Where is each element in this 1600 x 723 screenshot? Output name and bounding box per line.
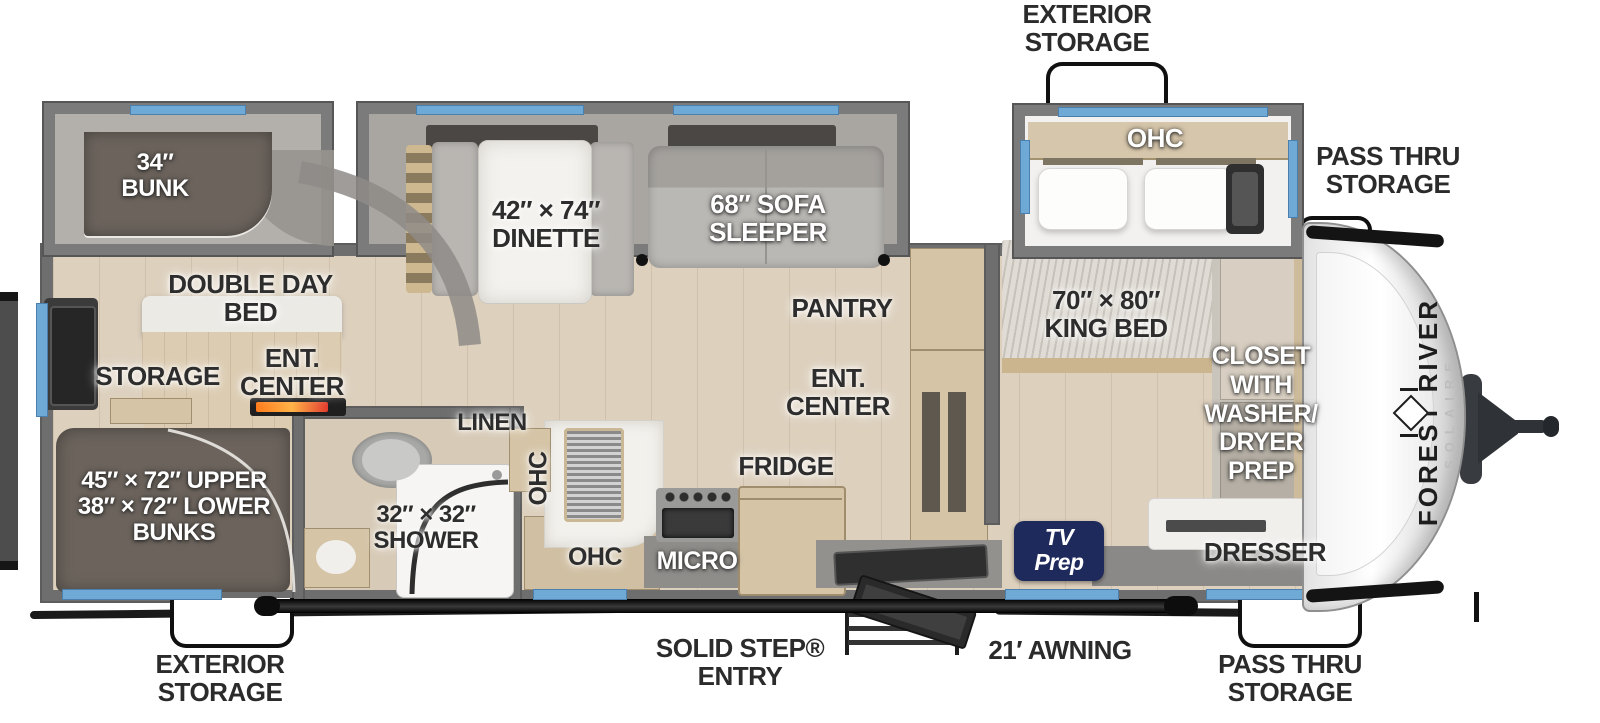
king-bed-base [1002, 358, 1212, 373]
awning-cap-left [254, 596, 280, 616]
pillow-right [1144, 168, 1234, 230]
label-ohc-kitchen-lower: OHC [556, 544, 634, 571]
bedroom-slide-side-window-glass [1232, 172, 1258, 226]
rear-wall-tv-screen [50, 306, 96, 406]
label-storage: STORAGE [85, 362, 230, 390]
sofa-window [673, 105, 839, 115]
label-linen: LINEN [444, 410, 540, 436]
label-solid-step-entry: SOLID STEP® ENTRY [645, 634, 835, 690]
dinette-window [416, 105, 584, 115]
bedroom-ent-center-slot-2 [948, 392, 966, 512]
brand-dash-top [1400, 388, 1418, 391]
awning-rod [262, 599, 1192, 613]
bottom-window-tvprep [1005, 589, 1119, 600]
label-bunks: 45″ × 72″ UPPER 38″ × 72″ LOWER BUNKS [60, 468, 288, 546]
bedroom-ent-center-slot-1 [922, 392, 940, 512]
label-pass-thru-top: PASS THRU STORAGE [1298, 142, 1478, 198]
brand-dash-bottom [1400, 434, 1418, 437]
bedroom-ohc-door-left [1043, 158, 1143, 165]
rear-wall-window [36, 303, 48, 417]
label-awning: 21′ AWNING [965, 636, 1155, 664]
label-dinette: 42″ × 74″ DINETTE [448, 196, 644, 252]
label-ent-center-bunkroom: ENT. CENTER [232, 344, 352, 400]
rear-bumper-cap-top [0, 292, 18, 301]
label-ohc-kitchen-wall: OHC [526, 434, 553, 524]
label-bunk-34: 34″ BUNK [95, 150, 215, 202]
kitchen-sink [564, 428, 624, 522]
bottom-window-kitchen [533, 589, 627, 600]
brand-solaire: SOLAIRE [1443, 292, 1461, 532]
sofa-cupholder-left [636, 254, 648, 266]
bedroom-divider-wall [984, 243, 1000, 525]
label-ohc-bedroom: OHC [1090, 124, 1220, 152]
label-ent-center-bedroom: ENT. CENTER [778, 364, 898, 420]
rear-bumper [0, 292, 18, 570]
label-closet-washer-dryer: CLOSET WITH WASHER/ DRYER PREP [1202, 342, 1320, 486]
front-jack-line [1474, 592, 1479, 622]
dresser-tv-bar [1166, 520, 1266, 532]
shower-drain [492, 470, 502, 480]
label-double-day-bed: DOUBLE DAY BED [148, 270, 353, 326]
label-fridge: FRIDGE [730, 452, 842, 480]
hitch-a-frame [1478, 392, 1518, 464]
label-pantry: PANTRY [782, 294, 902, 322]
fireplace-flame [256, 402, 328, 412]
storage-shelf [110, 398, 192, 424]
label-exterior-storage-top: EXTERIOR STORAGE [977, 0, 1197, 56]
label-pass-thru-bottom: PASS THRU STORAGE [1195, 650, 1385, 706]
label-exterior-storage-bottom: EXTERIOR STORAGE [120, 650, 320, 706]
hitch-coupler-tip [1543, 416, 1559, 437]
sofa-cupholder-right [878, 254, 890, 266]
toilet-lid [362, 439, 420, 481]
bottom-window-bunkroom [62, 589, 222, 600]
bedroom-slide-window-right [1288, 140, 1298, 218]
label-king-bed: 70″ × 80″ KING BED [1024, 286, 1188, 342]
bedroom-slide-window-left [1020, 140, 1030, 214]
label-dresser: DRESSER [1198, 538, 1332, 566]
rear-bumper-cap-bottom [0, 561, 18, 570]
pillow-left [1038, 168, 1128, 230]
bedroom-slide-window-top [1058, 107, 1268, 117]
stove-front [662, 508, 734, 538]
dinette-cushion-striped [406, 145, 432, 293]
bath-sink [316, 540, 356, 574]
label-tv-prep: TV Prep [1016, 525, 1102, 575]
awning-cap-right [1164, 596, 1198, 616]
stove-burners [662, 492, 734, 502]
pantry-cabinet [910, 248, 988, 350]
fridge-lid-line [738, 498, 842, 500]
label-shower: 32″ × 32″ SHOWER [352, 502, 500, 554]
label-micro: MICRO [650, 548, 744, 575]
bunk-slide-window [130, 105, 246, 115]
floorplan-diagram: FOREST RIVER SOLAIRE 34″ BUNK 42″ × 74″ … [0, 0, 1600, 723]
label-sofa-sleeper: 68″ SOFA SLEEPER [678, 190, 858, 246]
